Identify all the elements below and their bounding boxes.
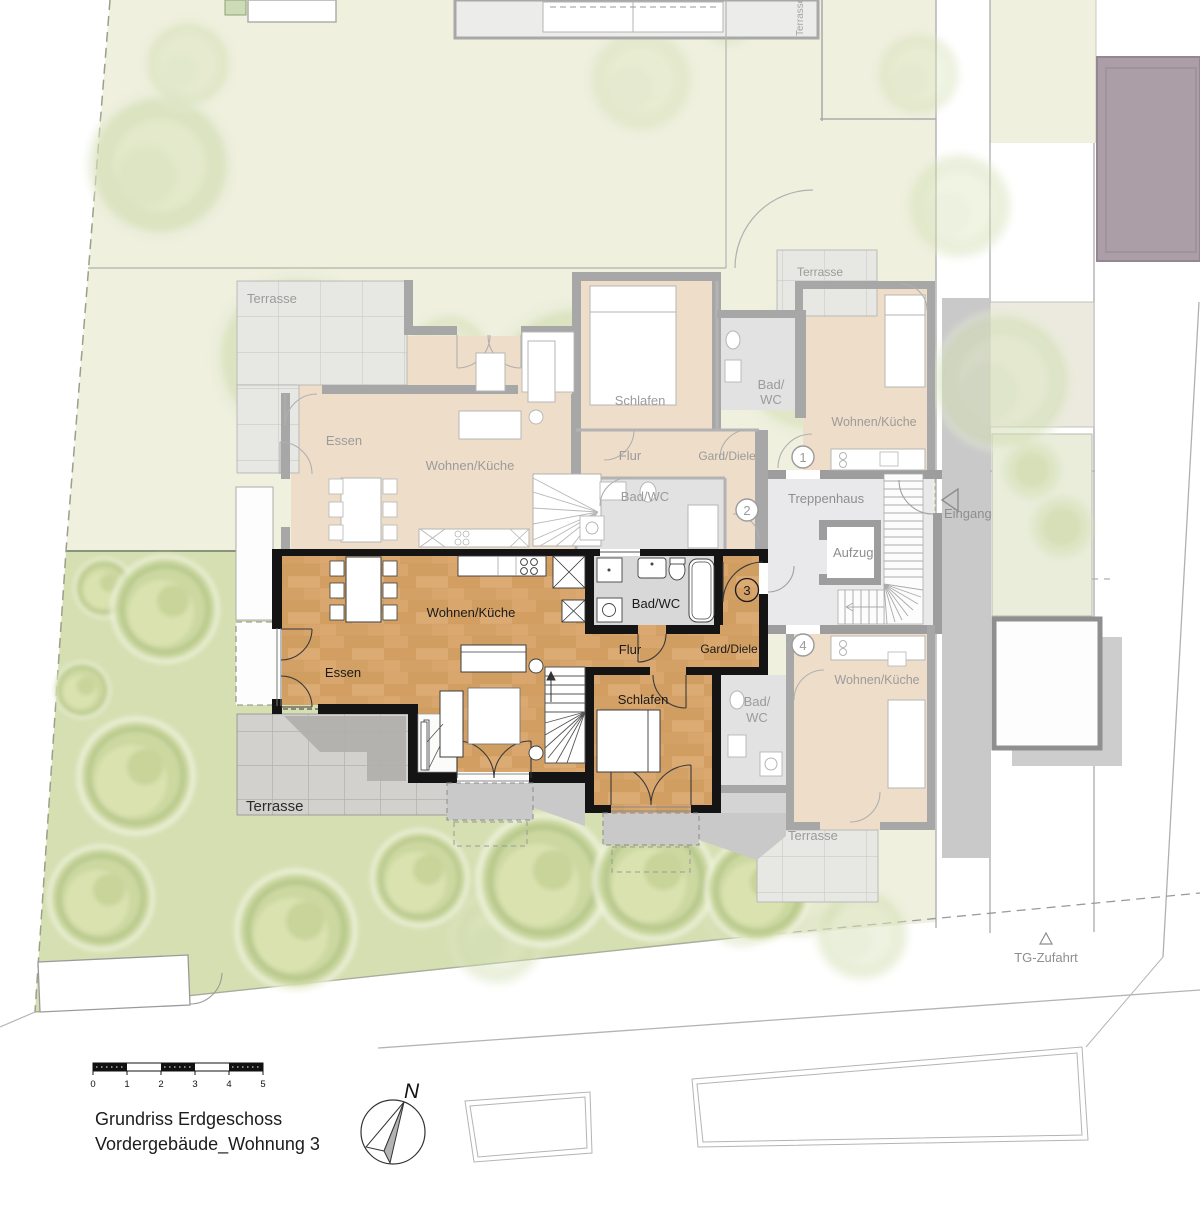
svg-text:Bad/WC: Bad/WC <box>632 596 680 611</box>
svg-text:3: 3 <box>192 1079 197 1090</box>
svg-text:TG-Zufahrt: TG-Zufahrt <box>1014 950 1078 965</box>
svg-text:Wohnen/Küche: Wohnen/Küche <box>426 458 515 473</box>
svg-text:2: 2 <box>743 503 750 518</box>
svg-text:WC: WC <box>760 392 782 407</box>
svg-text:4: 4 <box>226 1079 231 1090</box>
svg-text:Flur: Flur <box>619 642 642 657</box>
svg-text:Eingang: Eingang <box>944 506 992 521</box>
svg-text:Aufzug: Aufzug <box>833 545 873 560</box>
svg-text:Treppenhaus: Treppenhaus <box>788 491 865 506</box>
svg-text:Bad/WC: Bad/WC <box>621 489 669 504</box>
svg-text:Schlafen: Schlafen <box>618 692 669 707</box>
svg-text:Schlafen: Schlafen <box>615 393 666 408</box>
svg-text:Bad/: Bad/ <box>758 377 785 392</box>
svg-text:N: N <box>404 1080 420 1103</box>
svg-text:2: 2 <box>158 1079 163 1090</box>
svg-text:3: 3 <box>743 583 750 598</box>
svg-text:Wohnen/Küche: Wohnen/Küche <box>427 605 516 620</box>
svg-text:Terrasse: Terrasse <box>797 265 843 279</box>
svg-text:Essen: Essen <box>326 433 362 448</box>
svg-text:Wohnen/Küche: Wohnen/Küche <box>834 673 919 687</box>
svg-text:0: 0 <box>90 1079 95 1090</box>
svg-text:Bad/: Bad/ <box>744 694 771 709</box>
svg-text:Gard/Diele: Gard/Diele <box>698 449 756 463</box>
svg-text:5: 5 <box>260 1079 265 1090</box>
svg-text:1: 1 <box>124 1079 129 1090</box>
svg-text:4: 4 <box>799 638 806 653</box>
svg-text:Vordergebäude_Wohnung 3: Vordergebäude_Wohnung 3 <box>95 1134 320 1155</box>
svg-text:Terrasse: Terrasse <box>795 0 806 36</box>
svg-text:Terrasse: Terrasse <box>247 291 297 306</box>
svg-text:Flur: Flur <box>619 448 642 463</box>
svg-text:1: 1 <box>799 450 806 465</box>
svg-text:Gard/Diele: Gard/Diele <box>700 642 758 656</box>
svg-text:Essen: Essen <box>325 665 361 680</box>
svg-text:Wohnen/Küche: Wohnen/Küche <box>831 415 916 429</box>
svg-text:Grundriss Erdgeschoss: Grundriss Erdgeschoss <box>95 1109 282 1129</box>
svg-text:WC: WC <box>746 710 768 725</box>
svg-text:Terrasse: Terrasse <box>788 828 838 843</box>
svg-text:Terrasse: Terrasse <box>246 798 304 815</box>
